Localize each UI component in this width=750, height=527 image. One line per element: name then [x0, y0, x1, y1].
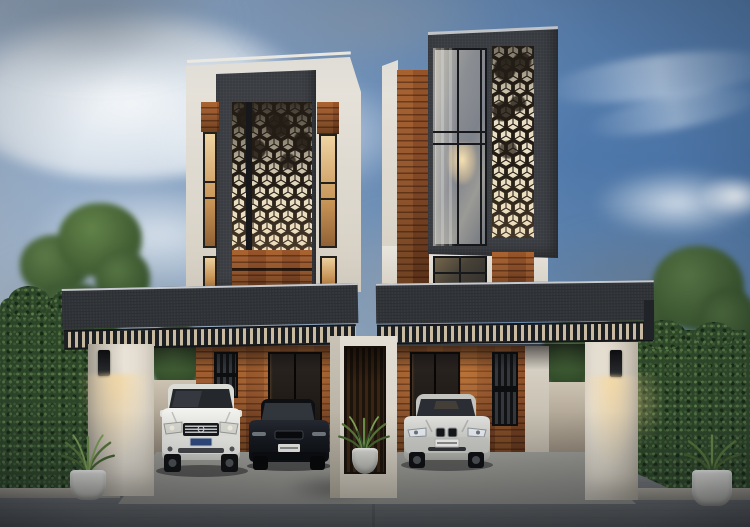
planter-left: [56, 428, 120, 502]
hedge-bump: [8, 286, 50, 318]
divider-frame-wall: [330, 336, 397, 498]
wood-band-slit: [232, 268, 312, 271]
pillar-right: [585, 342, 638, 500]
left-wood-patch-left: [201, 102, 219, 132]
planter-plant: [674, 426, 750, 476]
screen-sparse-overlay: [492, 46, 534, 238]
carport-roof-left: [62, 283, 359, 329]
dark-sedan: [243, 396, 335, 472]
hex-pattern-screen-left: [232, 102, 312, 250]
fascia-corner-cap-right: [644, 300, 654, 340]
window-mullion-h: [433, 143, 487, 145]
silver-sedan-bmw: [396, 390, 498, 472]
picture-window: [433, 48, 487, 246]
planter-pot: [70, 470, 106, 500]
architectural-render: [0, 0, 750, 527]
planter-pot: [692, 470, 732, 506]
hedge-bump: [694, 322, 734, 348]
window-bar: [203, 197, 217, 199]
planter-plant: [56, 428, 120, 476]
carport-roof-right: [376, 280, 654, 323]
window-mullion-h: [433, 131, 487, 133]
left-slot-window-1: [203, 132, 217, 248]
screen-post: [246, 102, 252, 250]
wall-lamp-right: [610, 350, 622, 377]
window-bar: [203, 181, 217, 183]
right-wood-strip: [397, 70, 429, 292]
hex-pattern-screen-right: [492, 46, 534, 238]
window-mullion-h: [433, 272, 487, 274]
left-wood-patch-right: [317, 102, 339, 134]
window-mullion-v: [457, 48, 459, 246]
wall-lamp-glow: [583, 376, 641, 468]
white-suv: [152, 378, 250, 478]
left-slot-window-3: [319, 134, 337, 248]
planter-right: [674, 426, 750, 510]
wall-lamp-left: [98, 350, 110, 376]
window-mullion-v: [480, 48, 482, 246]
window-bar: [319, 198, 337, 200]
screen-sparse-overlay: [232, 102, 312, 250]
chandelier-glow: [447, 143, 477, 185]
window-bar: [319, 182, 337, 184]
ceiling-shadow: [376, 344, 590, 370]
